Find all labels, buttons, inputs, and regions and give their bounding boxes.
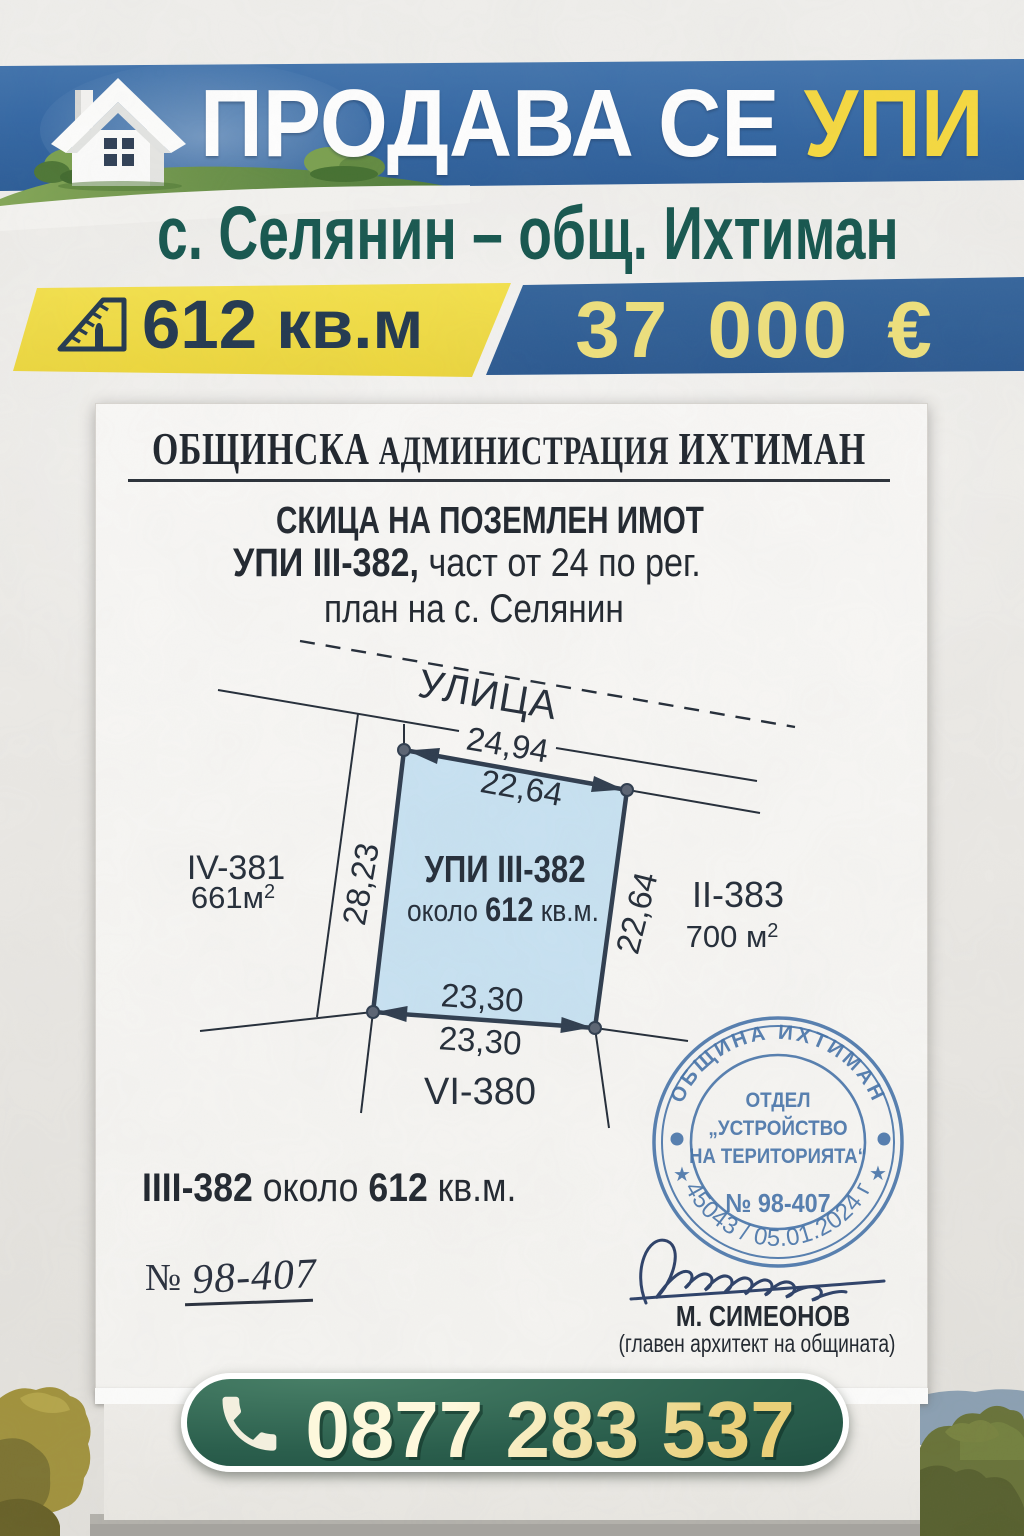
svg-text:НА ТЕРИТОРИЯТА“: НА ТЕРИТОРИЯТА“ bbox=[689, 1145, 867, 1168]
svg-text:23,30: 23,30 bbox=[440, 976, 525, 1019]
svg-text:661м2: 661м2 bbox=[191, 880, 275, 915]
svg-text:около 612 кв.м.: около 612 кв.м. bbox=[407, 890, 599, 929]
svg-text:VI-380: VI-380 bbox=[424, 1071, 536, 1113]
svg-text:„УСТРОЙСТВО: „УСТРОЙСТВО bbox=[708, 1115, 847, 1140]
svg-text:23,30: 23,30 bbox=[438, 1019, 523, 1062]
svg-text:II-383: II-383 bbox=[692, 874, 784, 915]
svg-text:№ 98-407: № 98-407 bbox=[725, 1190, 830, 1218]
svg-text:ОТДЕЛ: ОТДЕЛ bbox=[745, 1089, 810, 1112]
svg-text:28,23: 28,23 bbox=[335, 840, 386, 928]
svg-text:700 м2: 700 м2 bbox=[686, 919, 779, 954]
svg-text:★: ★ bbox=[673, 1164, 691, 1186]
svg-text:УЛИЦА: УЛИЦА bbox=[415, 662, 561, 729]
svg-text:22,64: 22,64 bbox=[609, 868, 665, 957]
svg-text:★: ★ bbox=[869, 1163, 887, 1185]
svg-text:УПИ III-382: УПИ III-382 bbox=[424, 849, 585, 891]
